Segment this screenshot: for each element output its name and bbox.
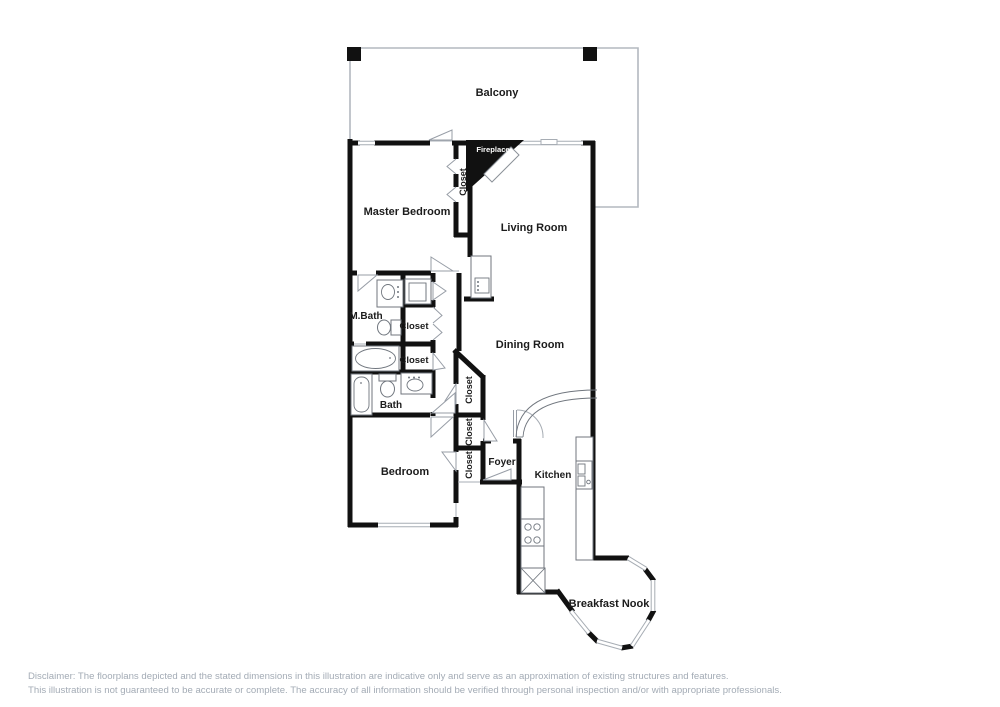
closet-label-dining: Closet <box>464 376 474 404</box>
room-label-bedroom: Bedroom <box>381 466 430 478</box>
door-swing-master-balcony <box>429 130 452 140</box>
room-label-foyer: Foyer <box>488 457 515 468</box>
balcony-pillar-right <box>583 47 597 61</box>
mbath-vanity-sink-icon <box>377 280 403 307</box>
closet-label-hall-lower: Closet <box>399 355 429 366</box>
appliance-x-icon <box>521 568 545 593</box>
door-swing-kitchen <box>515 410 543 438</box>
bath-bathtub-icon <box>351 374 372 415</box>
door-swing-master-hall <box>431 257 453 271</box>
door-swing-entry <box>483 469 511 480</box>
room-label-bath: Bath <box>380 400 402 411</box>
wetbar-sink-icon <box>471 256 491 298</box>
room-label-fireplace: Fireplace <box>476 145 509 154</box>
kitchen-counter-right <box>576 437 593 560</box>
room-label-breakfast-nook: Breakfast Nook <box>569 598 651 610</box>
disclaimer-line-1: Disclaimer: The floorplans depicted and … <box>28 670 782 684</box>
room-label-master-bedroom: Master Bedroom <box>364 206 451 218</box>
bifold-master-closet-2 <box>447 187 456 202</box>
floorplan-page: Balcony Master Bedroom Living Room Dinin… <box>0 0 1000 707</box>
door-swing-mbath <box>358 275 377 291</box>
balcony-pillar-left <box>347 47 361 61</box>
mbath-bathtub-icon <box>352 346 399 371</box>
room-label-mbath: M.Bath <box>349 311 382 322</box>
shower-icon <box>405 279 431 304</box>
closet-label-foyer: Closet <box>464 418 474 446</box>
room-label-balcony: Balcony <box>476 87 520 99</box>
closet-label-hall-upper: Closet <box>399 321 429 332</box>
stove-icon <box>521 519 544 546</box>
closet-label-bedroom: Closet <box>464 451 474 479</box>
bifold-hall-closet-2 <box>433 324 442 340</box>
room-label-kitchen: Kitchen <box>535 470 572 481</box>
bath-vanity-sink-icon <box>401 373 432 394</box>
kitchen-bar-counter <box>516 390 597 437</box>
kitchen-sink-icon <box>576 461 592 489</box>
slider-notch <box>541 140 557 145</box>
bath-toilet-icon <box>379 374 396 397</box>
room-label-dining-room: Dining Room <box>496 339 565 351</box>
door-swing-shower <box>433 282 446 300</box>
floorplan-drawing: Balcony Master Bedroom Living Room Dinin… <box>0 0 1000 707</box>
room-label-living-room: Living Room <box>501 222 568 234</box>
door-swing-foyer-closet <box>484 420 497 441</box>
door-swing-bedroom <box>431 417 453 437</box>
door-swing-hall-closet <box>433 353 445 370</box>
bifold-master-closet-1 <box>447 159 456 174</box>
mbath-toilet-icon <box>378 320 402 335</box>
door-swing-bedroom-closet <box>442 452 456 471</box>
disclaimer: Disclaimer: The floorplans depicted and … <box>28 670 782 698</box>
closet-label-master: Closet <box>458 168 468 196</box>
bifold-hall-closet-1 <box>433 307 442 323</box>
disclaimer-line-2: This illustration is not guaranteed to b… <box>28 684 782 698</box>
